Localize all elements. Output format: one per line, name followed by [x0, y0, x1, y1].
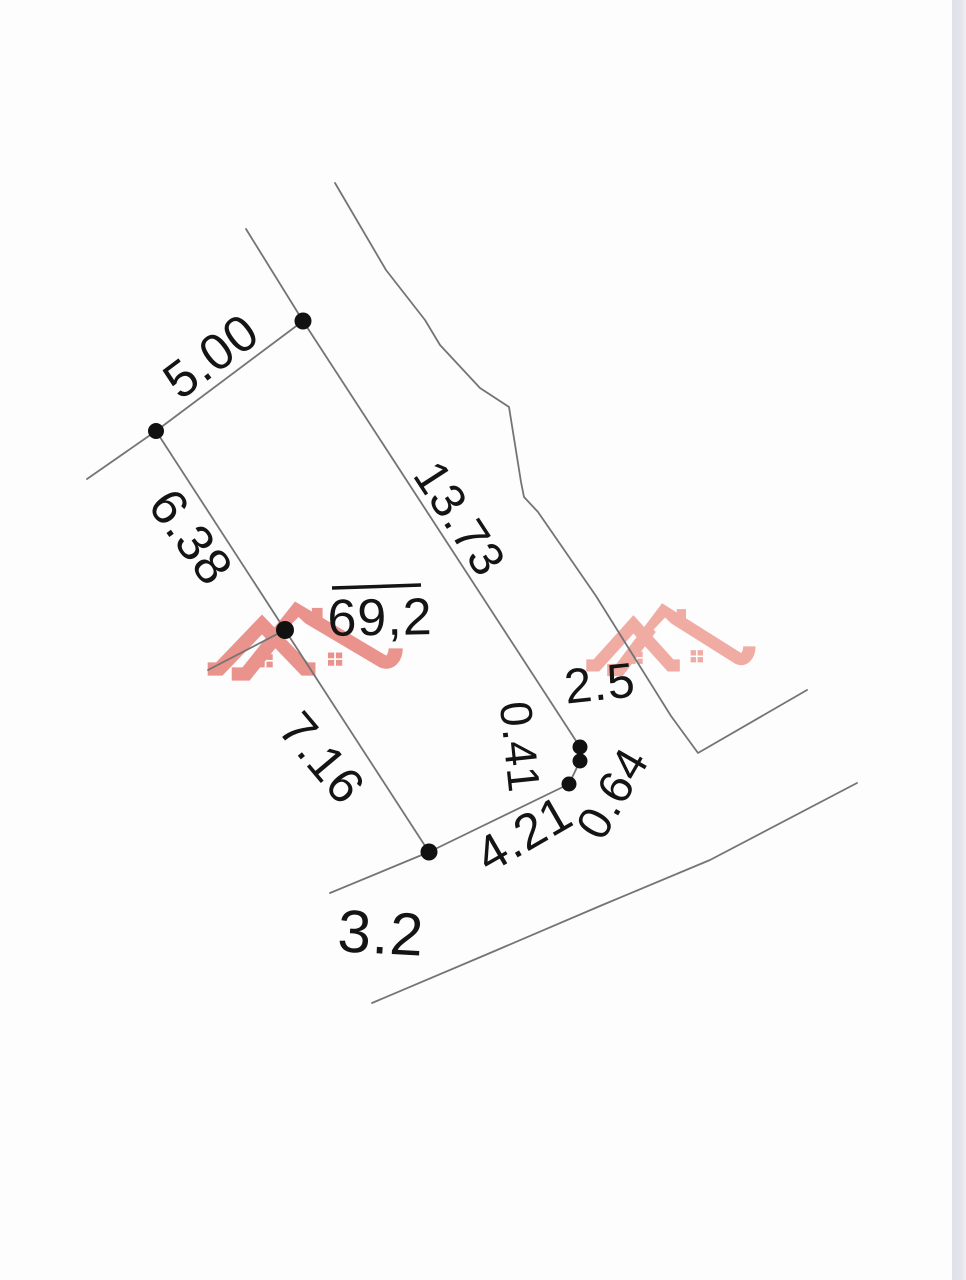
vertex-dot-west: [148, 423, 164, 439]
chimney: [312, 608, 323, 625]
window-pane: [336, 653, 342, 659]
window-pane: [258, 654, 264, 660]
dimension-label-4.21: 4.21: [466, 784, 582, 883]
window-pane: [328, 660, 334, 666]
window-pane: [637, 652, 642, 657]
vertex-dot-south: [421, 844, 438, 861]
dimension-label-5.00: 5.00: [153, 302, 270, 410]
window-pane: [266, 662, 272, 668]
cadastral-sketch-svg: 5.006.387.1613.7369,22.50.410.644.213.2: [0, 0, 966, 1280]
jog-dot-middle: [573, 754, 588, 769]
window-pane: [336, 660, 342, 666]
west-boundary-stub: [87, 431, 156, 479]
window-pane: [698, 657, 703, 662]
dimension-label-3.2: 3.2: [336, 897, 426, 968]
window-pane: [698, 650, 703, 655]
window-pane: [266, 654, 272, 660]
dimension-label-6.38: 6.38: [138, 478, 245, 595]
dimension-label-7.16: 7.16: [268, 701, 376, 815]
window-pane: [691, 650, 696, 655]
window-pane: [691, 657, 696, 662]
chimney: [677, 609, 686, 624]
jog-dot-upper: [573, 740, 588, 755]
dimension-label-2.5: 2.5: [562, 653, 638, 714]
window-pane: [328, 653, 334, 659]
vertex-dot-mid: [276, 621, 294, 639]
dimension-label-69,2: 69,2: [327, 588, 433, 648]
cadastral-sketch-photo: 5.006.387.1613.7369,22.50.410.644.213.2: [0, 0, 966, 1280]
vertex-dot-north: [295, 313, 312, 330]
dimension-label-0.41: 0.41: [490, 699, 550, 795]
photo-edge-strip: [952, 0, 966, 1280]
dimension-label-13.73: 13.73: [403, 452, 516, 586]
jog-dot-lower: [562, 777, 577, 792]
south-boundary-stub: [330, 852, 429, 893]
north-boundary-stub: [246, 229, 303, 321]
window-pane: [258, 662, 264, 668]
